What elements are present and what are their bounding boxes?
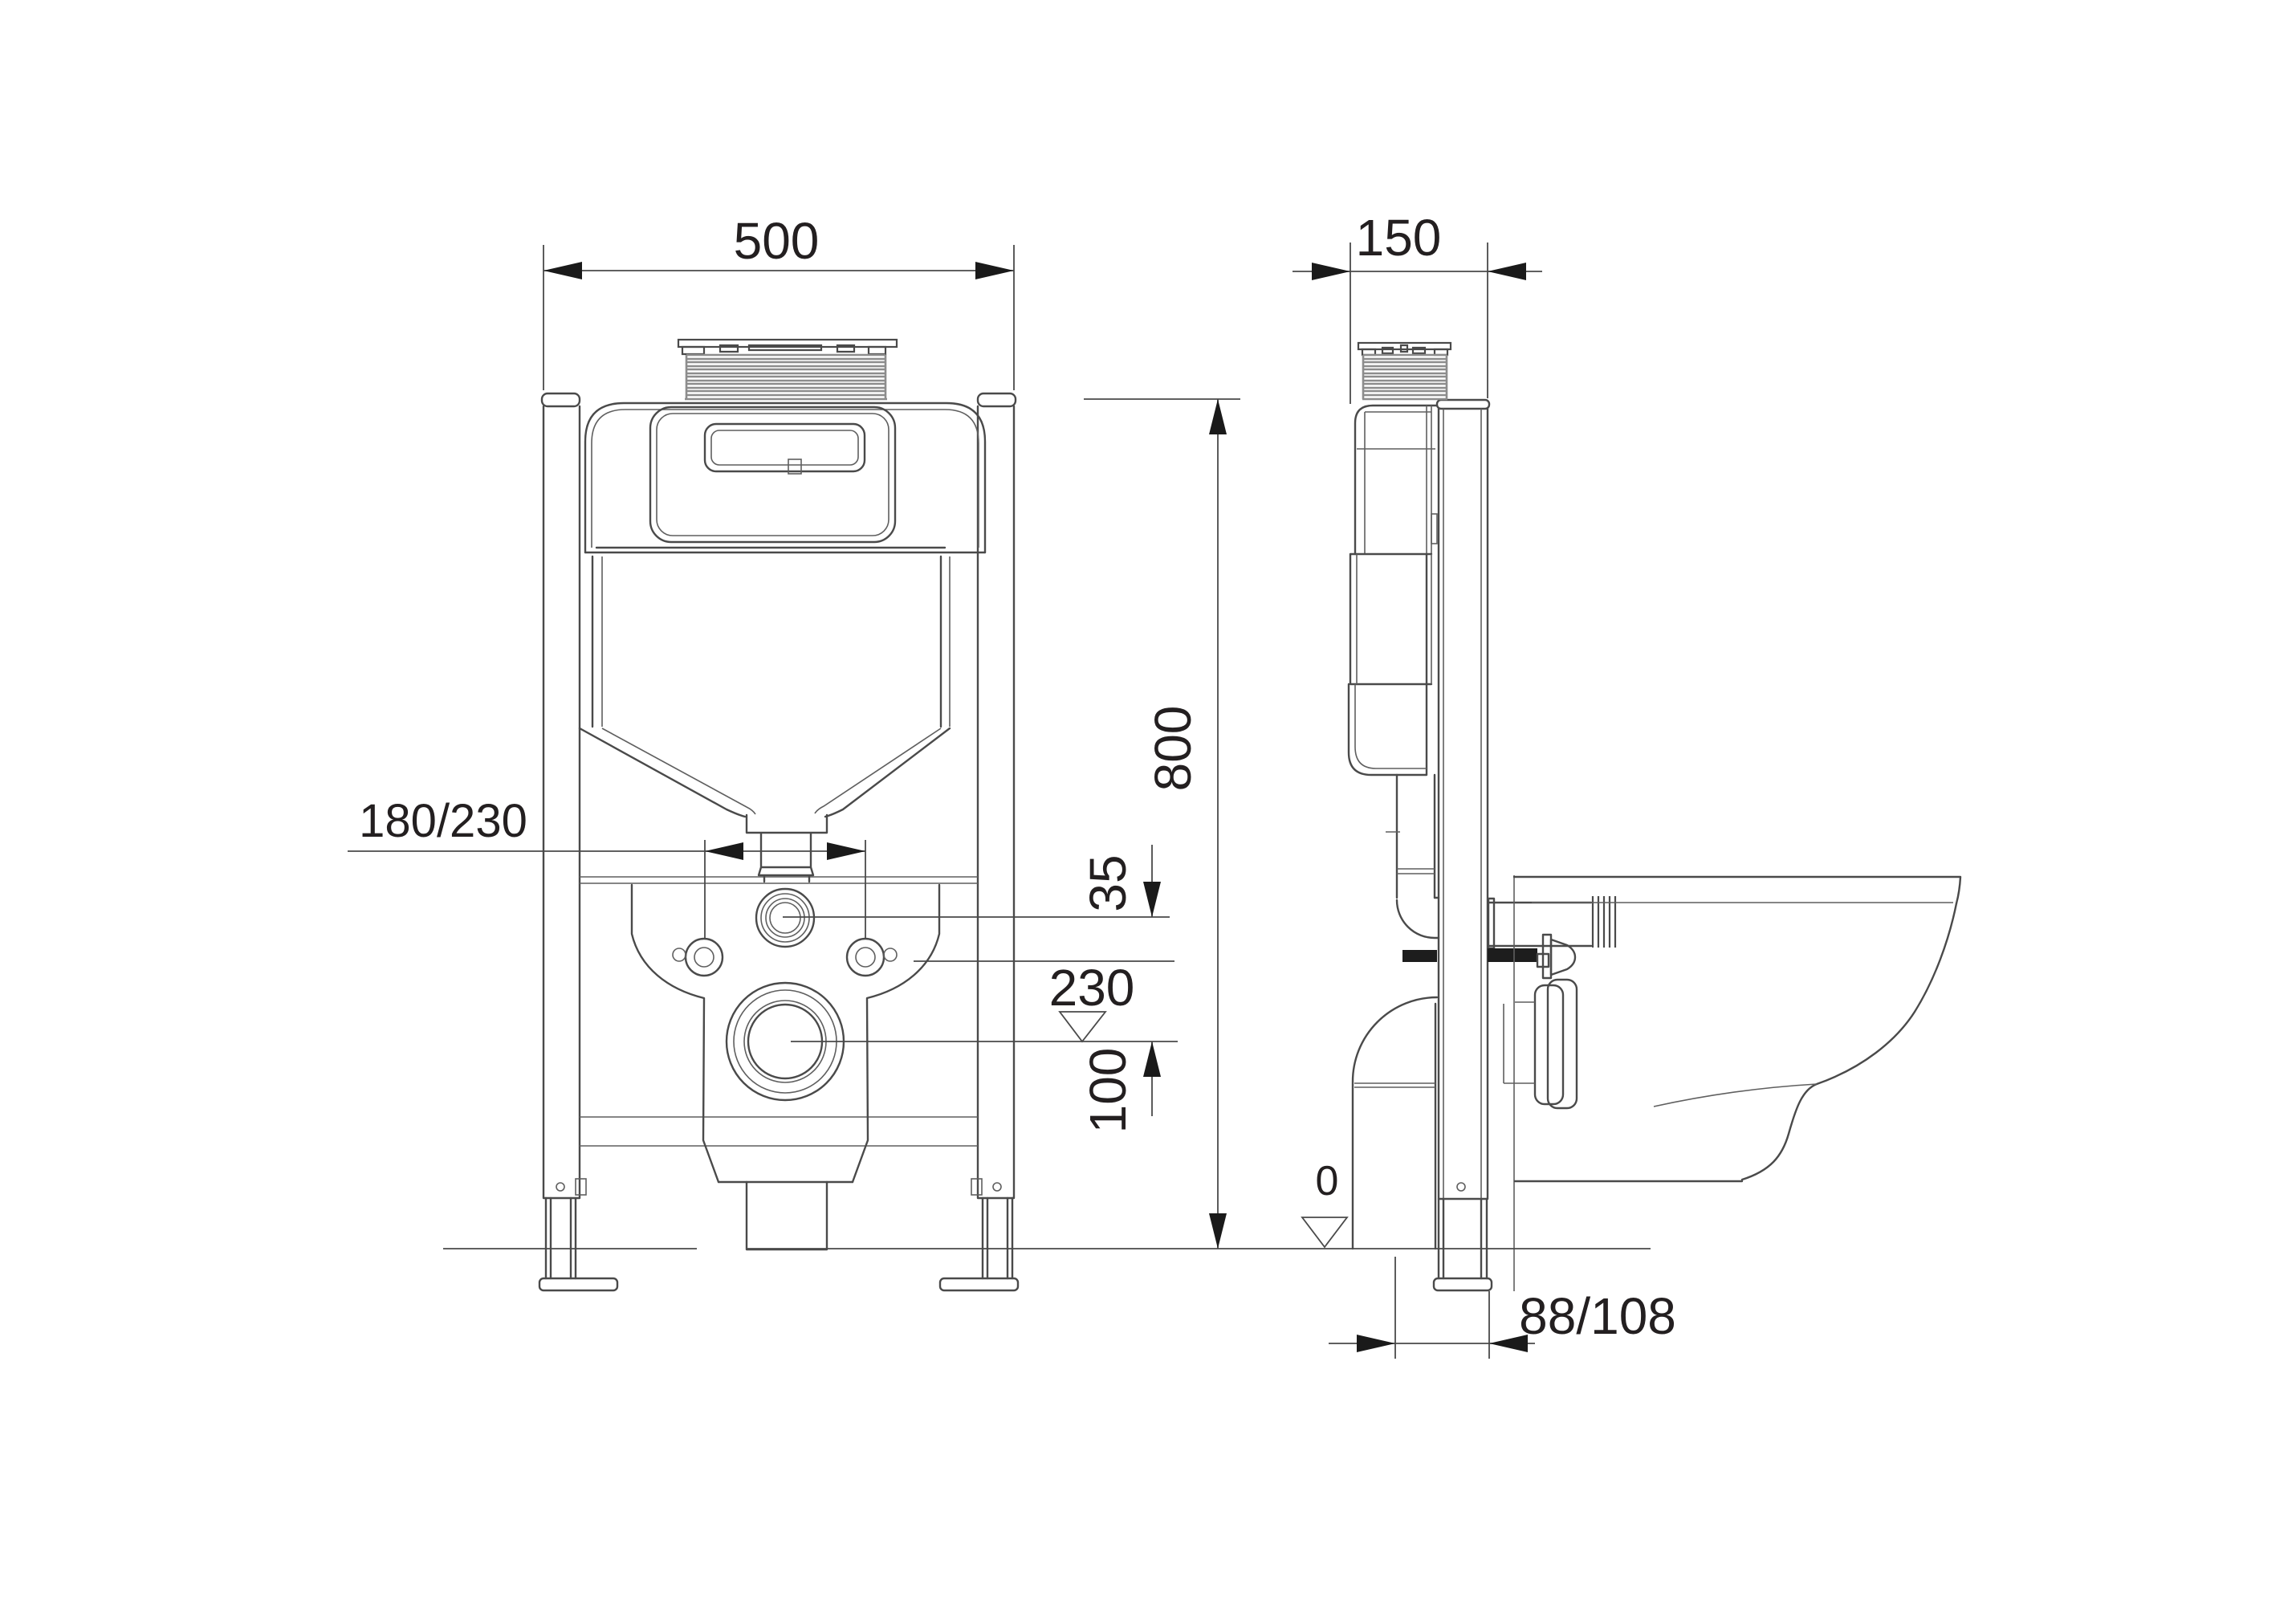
left-foot	[539, 1179, 617, 1290]
bowl-inner-curve	[1654, 1084, 1817, 1107]
arrow-right-icon	[1357, 1335, 1395, 1352]
technical-drawing-page: 500 150 800 180/230 35 230 100 0	[0, 0, 2296, 1606]
flush-bend-neck	[747, 815, 827, 882]
dimension-width-label: 500	[734, 212, 820, 270]
left-rail-cap	[542, 393, 580, 406]
water-inlet-port	[756, 889, 814, 947]
corrugated-connector	[1593, 896, 1615, 948]
foot-bolt	[576, 1179, 586, 1195]
fixing-hole-right	[847, 939, 897, 976]
dimension-floor-level-label: 0	[1316, 1158, 1339, 1204]
arrow-down-icon	[1209, 1213, 1227, 1249]
dimension-fixing-to-outlet: 100	[791, 1041, 1178, 1133]
flush-pipe-side	[1386, 775, 1615, 948]
dimension-depth: 150	[1293, 209, 1542, 404]
access-recess	[650, 407, 895, 542]
actuator-window	[705, 424, 865, 471]
arrow-down-icon	[1143, 882, 1161, 917]
pipe-collar	[1488, 899, 1494, 948]
foot-bolt	[971, 1179, 982, 1195]
datum-triangle-icon	[1302, 1217, 1347, 1247]
dimension-outlet-level: 230	[1049, 959, 1135, 1041]
front-view	[539, 340, 1018, 1290]
right-rail-cap	[978, 393, 1016, 406]
arrow-left-icon	[543, 262, 582, 279]
outlet-pipe-front	[747, 1182, 827, 1249]
arrow-up-icon	[1209, 399, 1227, 434]
dimension-drain-to-wall-label: 88/108	[1519, 1287, 1676, 1345]
wc-frame-installation-drawing: 500 150 800 180/230 35 230 100 0	[0, 0, 2296, 1606]
dimension-outlet-level-label: 230	[1049, 959, 1135, 1017]
dimension-fixing-to-outlet-label: 100	[1079, 1048, 1137, 1134]
frame-rail-side	[1434, 400, 1492, 1290]
wc-bowl	[1504, 877, 1960, 1181]
flush-actuator-side	[1358, 343, 1451, 399]
bellows-side	[1362, 355, 1447, 399]
side-view	[1349, 343, 1960, 1291]
arrow-right-icon	[975, 262, 1014, 279]
drain-elbow	[1353, 997, 1437, 1249]
cistern-front	[580, 403, 985, 882]
arrow-up-icon	[1143, 1041, 1161, 1077]
rail-hole	[556, 1183, 564, 1191]
fixing-hole-left	[673, 939, 723, 976]
bowl-bracket	[632, 885, 939, 1249]
outlet-boss	[1535, 985, 1563, 1104]
dimension-depth-label: 150	[1356, 209, 1442, 267]
dimension-height-label: 800	[1144, 706, 1202, 792]
cistern-side	[1349, 406, 1615, 978]
dimension-floor-level: 0	[1302, 1158, 1347, 1247]
dimension-inlet-offset-label: 35	[1079, 854, 1137, 911]
arrow-right-icon	[827, 842, 865, 860]
flush-actuator-front	[678, 340, 897, 399]
fill-valve-bracket	[1431, 514, 1437, 544]
rail-cap-side	[1437, 400, 1489, 409]
bellows-front	[685, 355, 887, 399]
right-foot	[940, 1179, 1018, 1290]
funnel	[580, 728, 950, 817]
rail-hole	[1457, 1183, 1465, 1191]
dimension-width: 500	[543, 212, 1014, 390]
dimension-fixing-spacing-label: 180/230	[359, 795, 527, 847]
rail-hole	[993, 1183, 1001, 1191]
foot-side	[1434, 1278, 1492, 1290]
arrow-left-icon	[1488, 263, 1526, 280]
arrow-left-icon	[705, 842, 743, 860]
dimension-drain-to-wall: 88/108	[1329, 1257, 1676, 1359]
arrow-right-icon	[1312, 263, 1350, 280]
anchor-cone	[1551, 940, 1575, 975]
